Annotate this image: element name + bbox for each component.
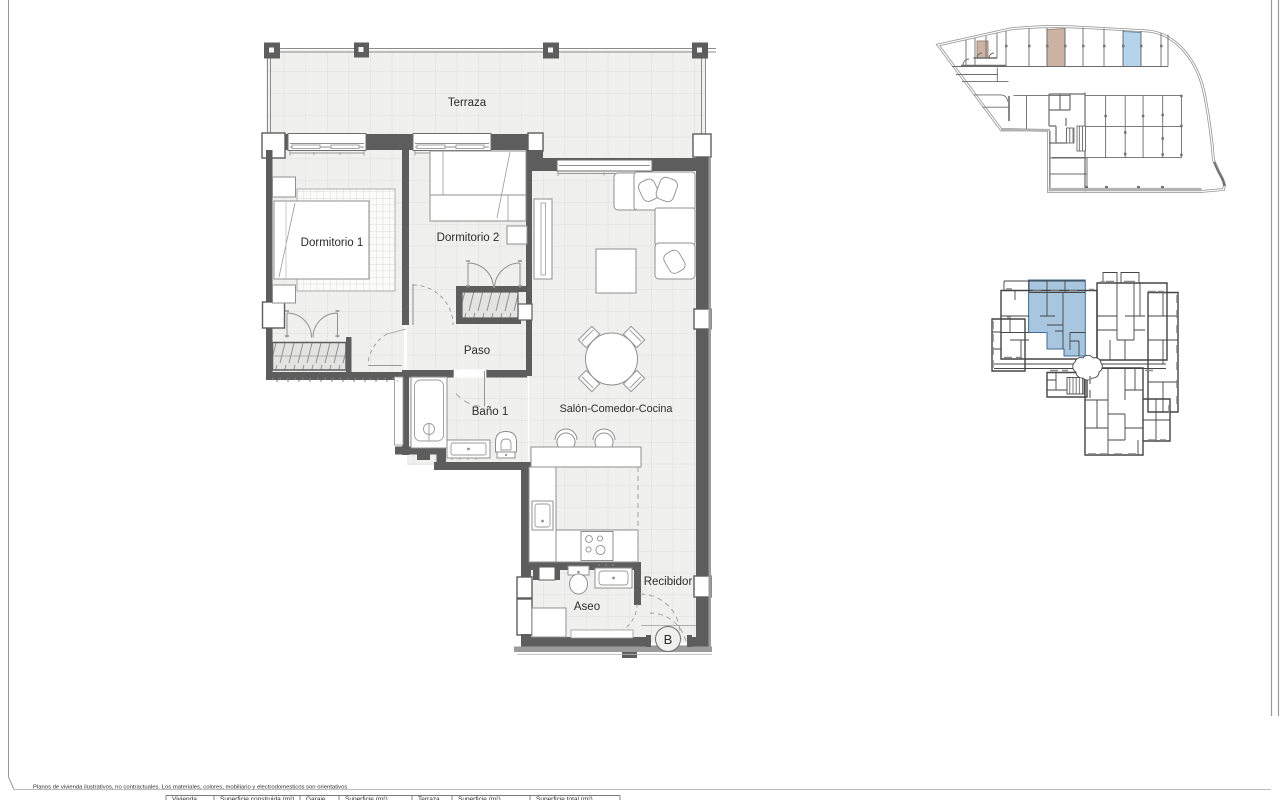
svg-text:Paso: Paso (464, 345, 490, 357)
svg-text:Aseo: Aseo (574, 601, 600, 613)
svg-text:Terraza: Terraza (418, 796, 440, 800)
svg-text:Superficie construida (m²): Superficie construida (m²) (220, 796, 294, 800)
svg-text:Vivienda: Vivienda (172, 796, 197, 800)
svg-text:B: B (664, 632, 673, 647)
svg-text:Recibidor: Recibidor (644, 576, 693, 588)
svg-text:Dormitorio 1: Dormitorio 1 (301, 237, 364, 249)
svg-text:Salón-Comedor-Cocina: Salón-Comedor-Cocina (560, 403, 673, 415)
svg-text:Planos de vivienda ilustrativo: Planos de vivienda ilustrativos, no cont… (33, 785, 347, 791)
svg-text:Superficie total (m²): Superficie total (m²) (536, 796, 593, 800)
svg-text:Baño 1: Baño 1 (472, 406, 508, 418)
svg-text:Dormitorio 2: Dormitorio 2 (437, 232, 500, 244)
svg-text:Garaje: Garaje (306, 796, 326, 800)
svg-text:Superficie (m²): Superficie (m²) (458, 796, 501, 800)
svg-text:Superficie (m²): Superficie (m²) (345, 796, 388, 800)
svg-text:Terraza: Terraza (448, 97, 487, 109)
